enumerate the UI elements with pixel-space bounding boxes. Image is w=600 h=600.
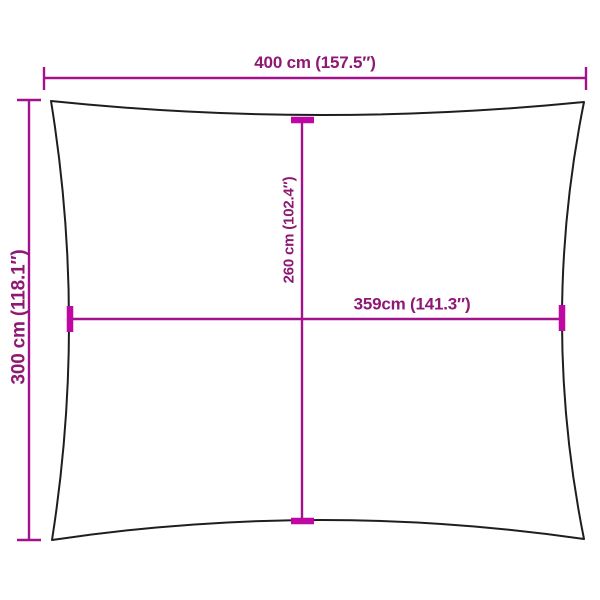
inner-height-label: 260 cm (102.4″) xyxy=(282,177,297,284)
left-height-label: 300 cm (118.1″) xyxy=(10,250,29,385)
diagram-canvas xyxy=(0,0,600,600)
product-dimension-diagram: 400 cm (157.5″) 300 cm (118.1″) 260 cm (… xyxy=(0,0,600,600)
sail-outline xyxy=(51,101,584,540)
inner-width-dimension xyxy=(70,305,562,332)
inner-width-label: 359cm (141.3″) xyxy=(354,296,471,313)
top-width-label: 400 cm (157.5″) xyxy=(254,54,375,71)
